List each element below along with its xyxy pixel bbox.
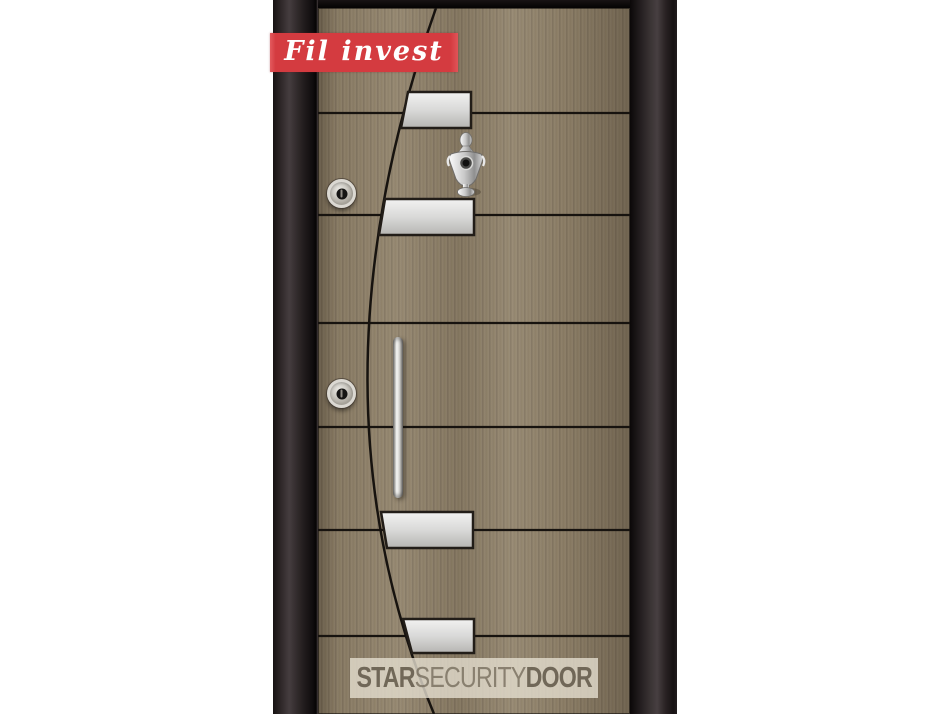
brand-badge: Fil invest	[270, 33, 458, 72]
door-frame-top	[318, 0, 630, 8]
watermark-text: STAR SECURITY DOOR	[356, 664, 592, 693]
brand-badge-label: Fil invest	[284, 38, 444, 68]
steel-plate	[401, 92, 471, 128]
steel-plate	[379, 199, 474, 235]
door-frame-right	[630, 0, 677, 714]
keyhole	[336, 188, 347, 199]
peephole	[463, 160, 470, 167]
lock-cylinder-lower	[327, 379, 356, 408]
door-panel	[318, 8, 630, 714]
security-door	[273, 0, 677, 714]
keyhole	[336, 388, 347, 399]
pull-handle	[393, 337, 403, 498]
panel-artwork	[318, 8, 630, 714]
door-frame-left	[273, 0, 318, 714]
knocker-knob	[460, 133, 472, 148]
watermark-band: STAR SECURITY DOOR	[350, 658, 598, 698]
watermark-text-security: SECURITY	[414, 664, 525, 693]
knocker-base	[458, 188, 475, 197]
lock-cylinder-upper	[327, 179, 356, 208]
product-image: Fil invest STAR SECURITY DOOR	[0, 0, 950, 714]
steel-plate	[403, 619, 474, 653]
steel-plate	[381, 512, 473, 548]
door-knocker-icon	[448, 133, 485, 197]
watermark-text-star: STAR	[356, 664, 414, 693]
watermark-text-door: DOOR	[525, 664, 591, 693]
